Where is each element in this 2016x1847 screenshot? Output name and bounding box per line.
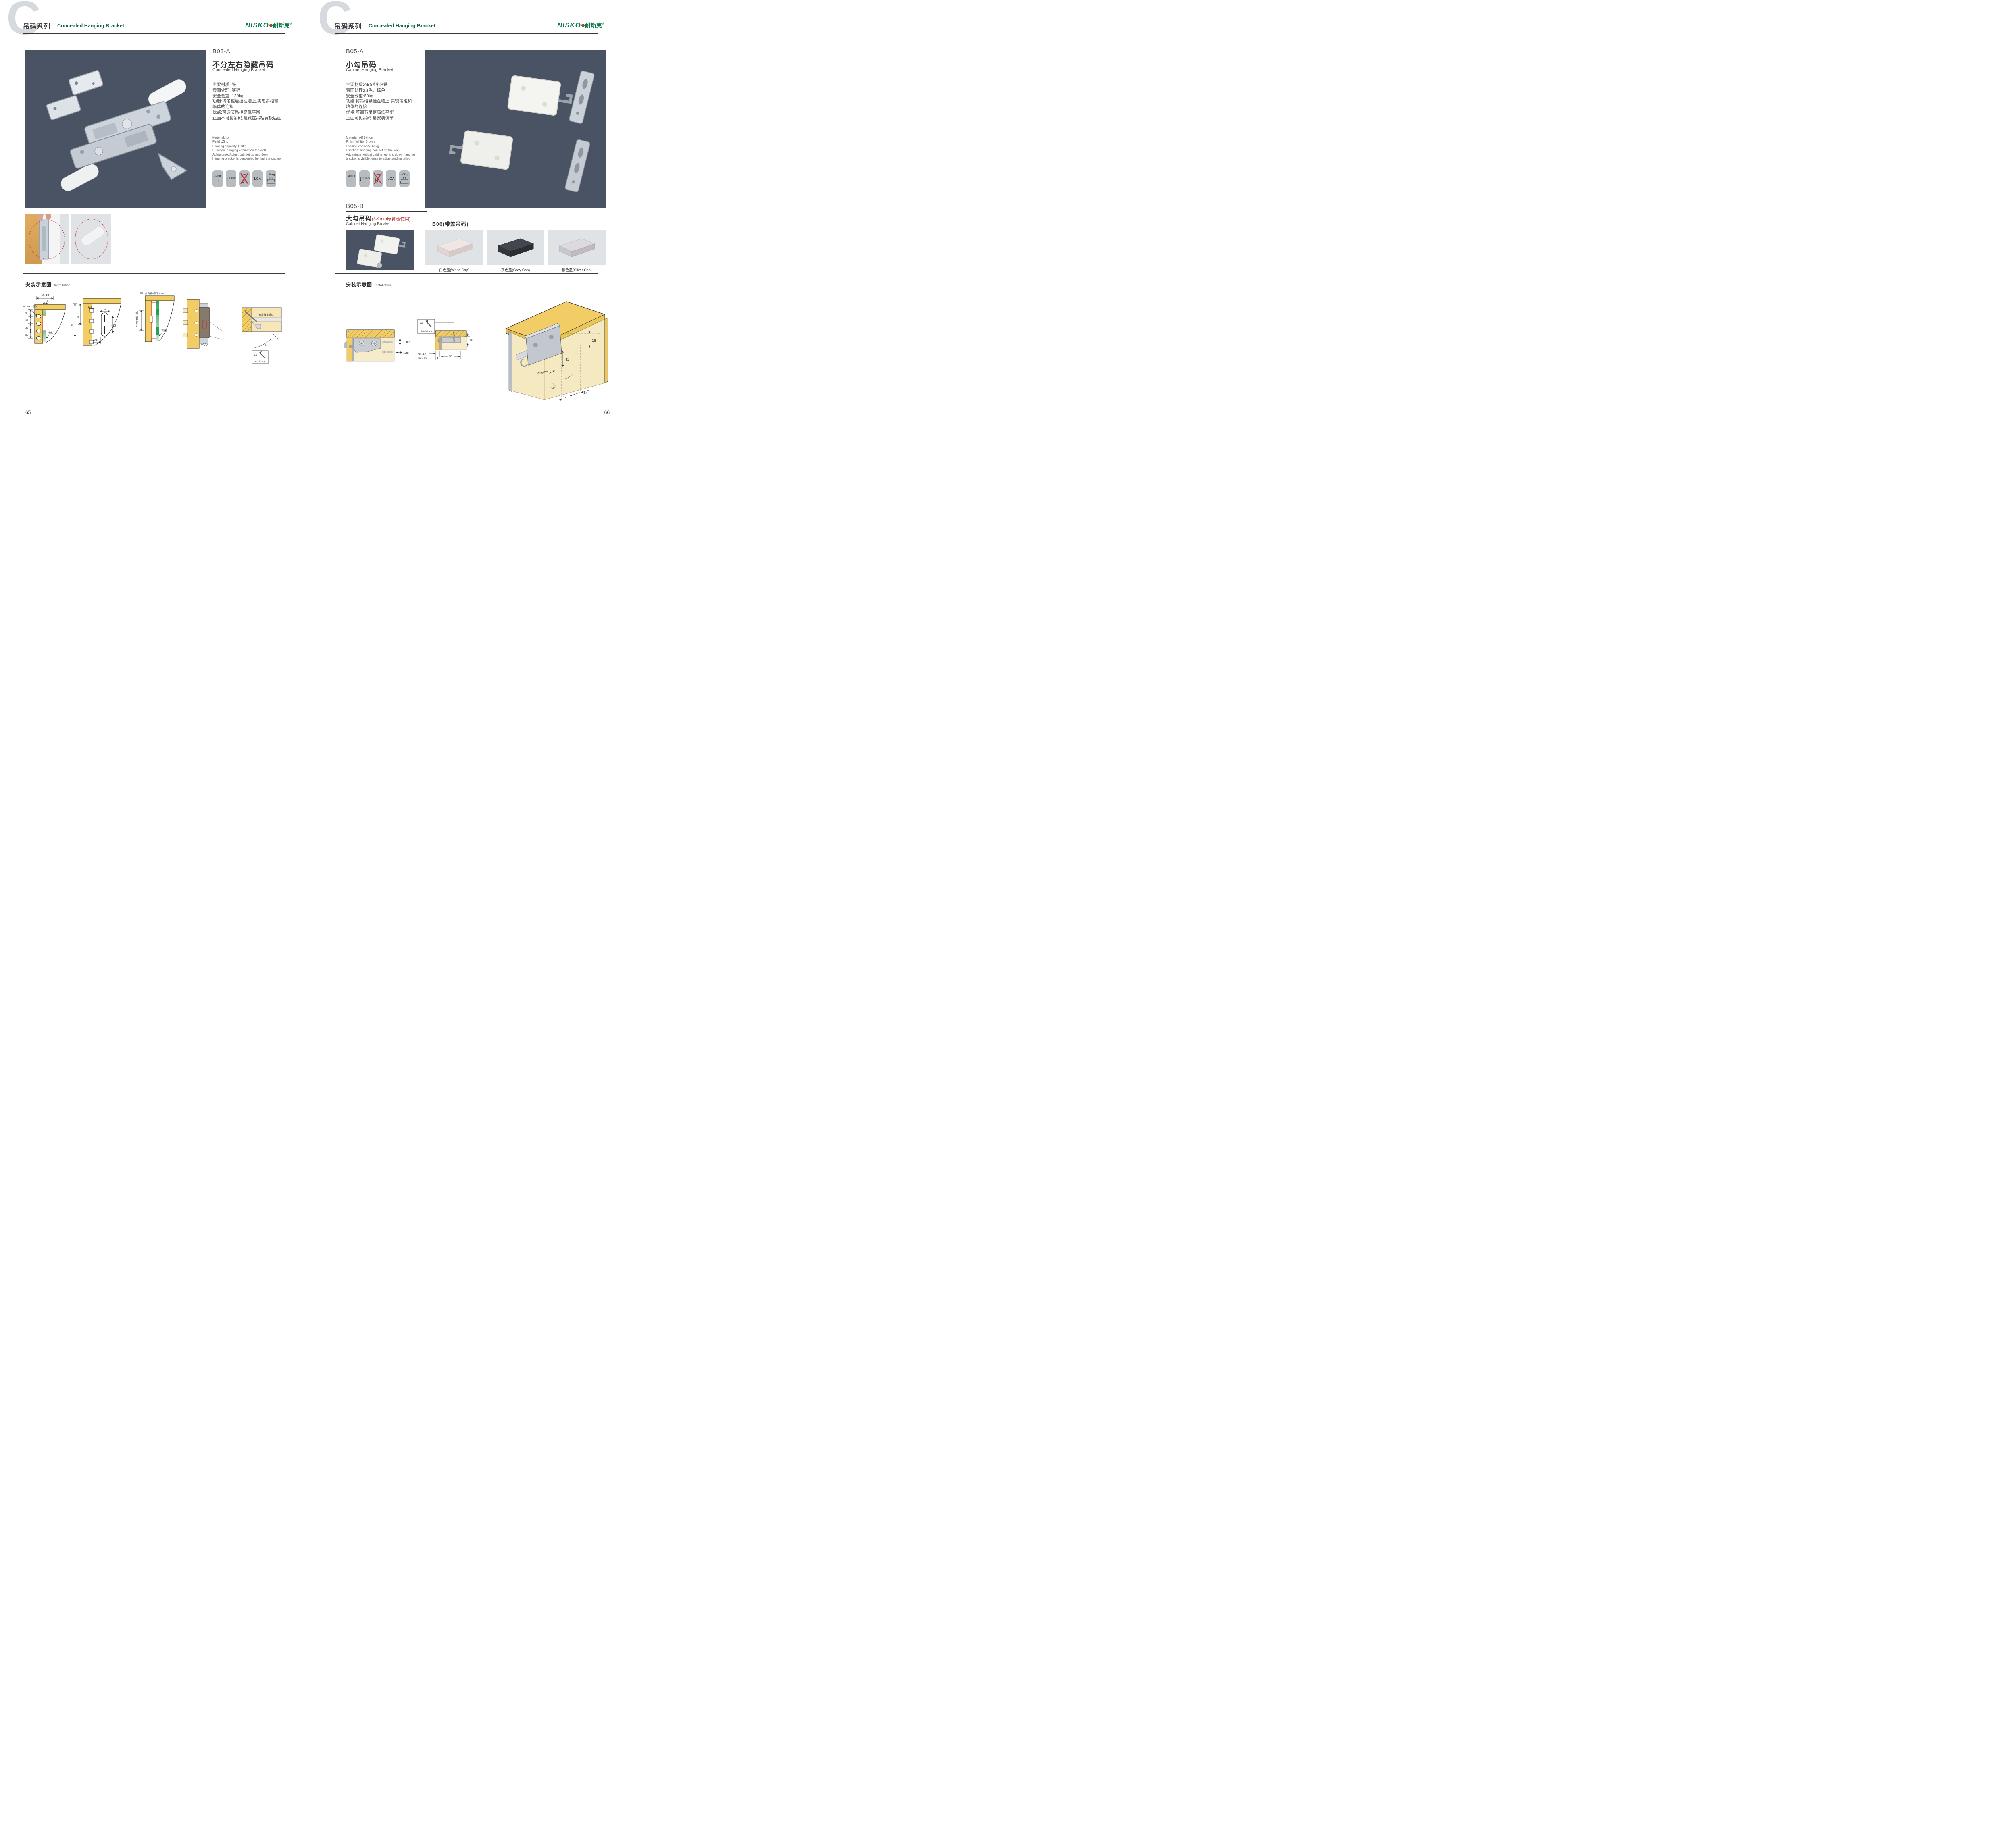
svg-text:16: 16 — [592, 339, 596, 343]
svg-text:17: 17 — [563, 395, 566, 399]
icon-height-adjust: ↕ 10mm — [359, 170, 370, 187]
series-title-en: Concealed Hanging Bracket — [57, 23, 124, 29]
svg-text:前后最大调节10mm: 前后最大调节10mm — [145, 292, 165, 295]
installation-header: 安装示意图Installation — [25, 281, 71, 288]
horizontal-arrow-icon: ↔ — [349, 178, 354, 183]
svg-text:12.5: 12.5 — [88, 306, 92, 308]
lga-cert-icon: LGA — [386, 170, 396, 187]
spec-line: 主要材质: 铁 — [212, 82, 281, 88]
page-header: 吊码系列 Concealed Hanging Bracket — [23, 21, 124, 31]
b06-rule — [476, 223, 606, 223]
spec-line: 安全载重:60kg — [346, 94, 412, 99]
spec-line-en: Loading capacity:120kg — [212, 144, 281, 148]
spec-line: 功能:将吊柜悬挂在墙上,实现吊柜和 — [346, 99, 412, 104]
spec-line: 墙体的连接 — [346, 104, 412, 110]
install-detail-callout: 安装自攻螺丝 45° 1x Φ3.5mm — [236, 306, 286, 368]
icon-width-adjust: 10mm ↔ — [212, 170, 223, 187]
svg-text:10mm: 10mm — [403, 341, 410, 344]
vertical-arrow-icon: ↕ — [226, 176, 229, 181]
no-drill-icon — [373, 170, 383, 187]
b03a-product-illustration — [25, 50, 206, 208]
highlight-ellipse — [29, 220, 65, 259]
install-diagram-section-4 — [182, 297, 223, 354]
brand-logo-zh: 耐斯克 — [273, 22, 290, 29]
svg-text:60: 60 — [71, 324, 75, 327]
svg-text:58: 58 — [449, 355, 452, 358]
svg-text:35: 35 — [25, 312, 29, 315]
page-number: 66 — [594, 410, 610, 415]
product-specs-en: Material: ABS+Iron Finish:White, Brown L… — [346, 136, 415, 161]
spec-line: 表面处理:白色、棕色 — [346, 88, 412, 94]
installation-header: 安装示意图Installation — [346, 281, 391, 288]
up-down-note: 上下调节10mm — [135, 310, 138, 339]
product-specs-en: Material:Iron Finish:Zinc Loading capaci… — [212, 136, 281, 161]
brand-logo-dot-icon — [269, 24, 273, 27]
svg-text:Φ3.5mm: Φ3.5mm — [255, 360, 265, 363]
svg-text:32: 32 — [25, 327, 29, 329]
svg-text:Φ10-4个均布: Φ10-4个均布 — [23, 305, 37, 308]
svg-text:安装自攻螺丝: 安装自攻螺丝 — [258, 313, 273, 316]
photo-cover-cap — [71, 214, 111, 264]
series-title-zh: 吊码系列 — [23, 21, 50, 31]
spec-line-en: Loading capacity: 60kg — [346, 144, 415, 148]
svg-text:5: 5 — [47, 300, 48, 303]
svg-text:42: 42 — [565, 358, 569, 362]
svg-text:32: 32 — [25, 334, 29, 337]
install-diagram-section-view: 2x Φ4×30mm 18 MIN.10 MAX.23 58 — [417, 318, 473, 364]
svg-text:MAX.23: MAX.23 — [418, 357, 427, 360]
b06-label: B06(带盖吊码) — [432, 220, 469, 227]
product-specs-zh: 主要材质:ABS塑料+铁 表面处理:白色、棕色 安全载重:60kg 功能:将吊柜… — [346, 82, 412, 121]
silver-cap-image — [548, 230, 606, 265]
page-header: 吊码系列 Concealed Hanging Bracket — [334, 21, 435, 31]
install-diagram-section-2: 60 35 12.5 12 42.5 20.5 — [71, 295, 126, 350]
catalog-page-right: C 吊码系列 Concealed Hanging Bracket NISKO耐斯… — [311, 0, 623, 425]
gray-cap-image — [487, 230, 544, 265]
svg-text:16-18: 16-18 — [41, 293, 49, 297]
brand-logo-dot-icon — [581, 24, 585, 27]
spec-line: 正面不可见吊码,隐藏在吊柜背板后面 — [212, 116, 281, 121]
icon-width-adjust: 15mm ↔ — [346, 170, 356, 187]
svg-text:32: 32 — [25, 319, 29, 322]
product-title-en: Cabinet Hanging Bracket — [346, 67, 393, 72]
spec-line: 功能:将吊柜悬挂在墙上,实现吊柜和 — [212, 99, 281, 104]
brand-logo: NISKO耐斯克® — [557, 21, 604, 29]
header-rule — [335, 33, 598, 34]
spec-line-en: Material: ABS+Iron — [346, 136, 415, 140]
header-separator — [365, 22, 365, 29]
product-code: B05-A — [346, 48, 364, 55]
spec-line-en: hanging bracket is concealed behind the … — [212, 157, 281, 161]
svg-text:背板: 背板 — [161, 329, 167, 332]
install-diagram-bracket-side: 10mm 15mm — [344, 327, 410, 368]
svg-text:15mm: 15mm — [403, 352, 410, 354]
product-photo-b05b — [346, 230, 414, 270]
brand-logo-text: NISKO — [557, 21, 581, 29]
registered-mark: ® — [602, 22, 604, 26]
b05a-product-illustration — [425, 50, 606, 208]
feature-icons-row: 15mm ↔ ↕ 10mm LGA 60Kg — [346, 170, 410, 187]
svg-text:MIN.10: MIN.10 — [418, 353, 426, 356]
svg-text:2x: 2x — [420, 322, 423, 324]
spec-line-en: Advantage: Adjust cabinet up and down ha… — [346, 153, 415, 157]
product-specs-zh: 主要材质: 铁 表面处理: 镀锌 安全载重: 120kg 功能:将吊柜悬挂在墙上… — [212, 82, 281, 121]
spec-line-en: Finish:White, Brown — [346, 140, 415, 144]
spec-line: 主要材质:ABS塑料+铁 — [346, 82, 412, 88]
cap-label-white: 白色盖(White Cap) — [425, 267, 483, 272]
brand-logo-text: NISKO — [245, 21, 269, 29]
product-code: B03-A — [212, 48, 230, 55]
icon-height-adjust: ↕ 10mm — [226, 170, 236, 187]
highlight-ellipse — [75, 219, 108, 259]
svg-text:12: 12 — [104, 308, 106, 310]
header-separator — [54, 22, 54, 29]
series-title-zh: 吊码系列 — [334, 21, 362, 31]
page-number: 65 — [25, 410, 31, 415]
code-underline — [346, 211, 427, 212]
svg-text:45°: 45° — [263, 343, 268, 347]
spec-line-en: Material:Iron — [212, 136, 281, 140]
lga-cert-icon: LGA — [252, 170, 263, 187]
header-rule — [23, 33, 285, 34]
spec-line: 优点:可调节吊柜高低平衡 — [346, 110, 412, 116]
section-divider — [23, 273, 285, 274]
svg-text:20.5: 20.5 — [93, 339, 98, 341]
feature-icons-row: 10mm ↔ ↕ 10mm LGA 120Kg — [212, 170, 276, 187]
horizontal-arrow-icon: ↔ — [215, 178, 221, 183]
product-photo-b03a — [25, 50, 206, 208]
spec-line-en: Finish:Zinc — [212, 140, 281, 144]
spec-line: 墙体的连接 — [212, 104, 281, 110]
install-diagram-section-1: 16-18 5 35 32 32 32 Φ10-4个均布 — [23, 293, 69, 349]
product-photo-b05a — [425, 50, 606, 208]
spec-line: 安全载重: 120kg — [212, 94, 281, 99]
svg-text:背板: 背板 — [48, 331, 54, 335]
load-capacity-icon: 60Kg — [399, 170, 410, 187]
load-capacity-icon: 120Kg — [266, 170, 276, 187]
photo-bracket-in-cabinet — [25, 214, 69, 264]
brand-logo: NISKO耐斯克® — [245, 21, 292, 29]
cap-label-silver: 银色盖(Silver Cap) — [548, 267, 606, 272]
install-diagram-section-3: 上下调节10mm 前后最大调节10mm 背板 — [135, 291, 177, 350]
spec-line-en: Advantage: Adjust cabinet up and down — [212, 153, 281, 157]
spec-line-en: Function: hanging cabinet on the wall — [346, 148, 415, 152]
section-divider — [335, 273, 598, 274]
no-drill-icon — [239, 170, 250, 187]
product-code: B05-B — [346, 203, 364, 210]
product-title-zh: 大勾吊码(3-9mm厚背板使用) — [346, 214, 411, 223]
series-title-en: Concealed Hanging Bracket — [369, 23, 435, 29]
cap-label-gray: 灰色盖(Gray Cap) — [487, 267, 544, 272]
spec-line-en: Function: hanging cabinet on the wall — [212, 148, 281, 152]
brand-logo-zh: 耐斯克 — [585, 22, 602, 29]
svg-text:35: 35 — [77, 316, 81, 319]
svg-text:1x: 1x — [254, 354, 257, 356]
catalog-page-left: C 吊码系列 Concealed Hanging Bracket NISKO耐斯… — [0, 0, 311, 425]
spec-line: 正面可见吊码,易安装调节 — [346, 116, 412, 121]
install-diagram-3d: 16 42 RMAX4 16 17 32 — [504, 298, 610, 408]
spec-line: 表面处理: 镀锌 — [212, 88, 281, 94]
vertical-arrow-icon: ↕ — [359, 176, 362, 181]
svg-text:18: 18 — [469, 339, 473, 342]
product-title-en: Cabinet Hanging Brcaket — [346, 222, 391, 226]
spec-line-en: bracket is visible, easy to adjust and i… — [346, 157, 415, 161]
white-cap-image — [425, 230, 483, 265]
registered-mark: ® — [290, 22, 292, 26]
svg-text:Φ4×30mm: Φ4×30mm — [421, 331, 432, 333]
product-title-en: Concealed Hanging Bracket — [212, 67, 265, 72]
spec-line: 优点:可调节吊柜高低平衡 — [212, 110, 281, 116]
title-red-note: (3-9mm厚背板使用) — [372, 217, 411, 222]
